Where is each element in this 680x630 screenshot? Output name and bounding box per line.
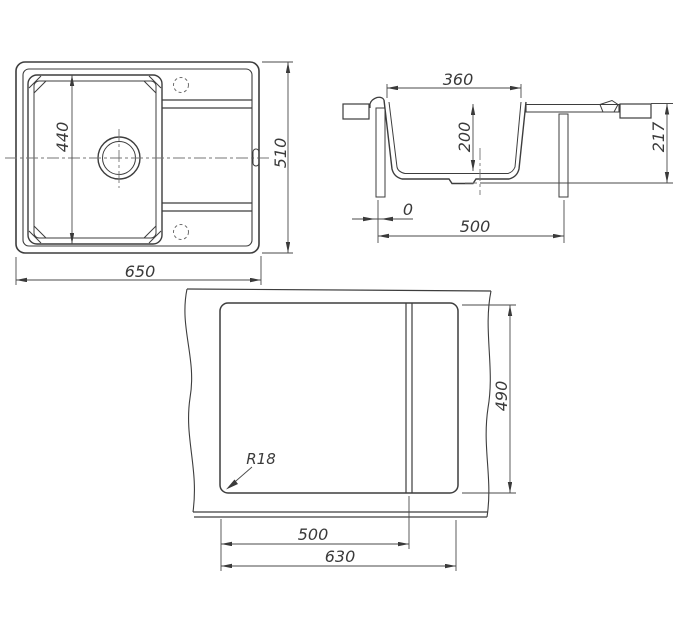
dim-bowl-depth: 200 [455, 104, 474, 171]
cutout-divider-lines [406, 303, 412, 493]
corner-radius-callout: R18 [226, 450, 276, 490]
support-rail-left [376, 108, 385, 197]
sink-drawing-svg: 440 510 650 [0, 0, 680, 630]
dim-main-section-width: 500 [221, 496, 409, 571]
sink-outer-outline [16, 62, 259, 253]
countertop-top-edge [187, 289, 491, 291]
sink-inner-outline [23, 69, 252, 246]
bowl-rim-outer [28, 75, 162, 244]
dim-label-500-cutout: 500 [298, 525, 329, 544]
rim-lip-left [370, 97, 384, 108]
countertop-break-right [486, 291, 491, 517]
bowl-corner-chamfers [29, 76, 161, 243]
cutout-view: R18 490 500 630 [185, 289, 516, 571]
dim-edge-offset: 0 [352, 200, 413, 243]
fixing-clip-detail [600, 101, 618, 113]
tap-hole-top [174, 78, 189, 93]
dim-label-650: 650 [125, 262, 156, 281]
dim-overall-height: 217 [480, 104, 673, 184]
edge-clip-mark [253, 149, 259, 166]
dim-label-217: 217 [649, 121, 668, 152]
plan-view: 440 510 650 [5, 62, 293, 285]
support-rail-right [559, 114, 568, 197]
dim-bowl-top-width: 360 [387, 70, 521, 98]
dim-label-510: 510 [271, 138, 290, 169]
countertop-break-left [185, 289, 195, 512]
dim-label-500-section: 500 [460, 217, 491, 236]
dim-cutout-width: 630 [221, 520, 456, 571]
technical-drawing-canvas: 440 510 650 [0, 0, 680, 630]
drainboard-ribs [162, 100, 252, 211]
dim-label-440: 440 [53, 122, 72, 153]
dim-overall-depth: 510 [262, 62, 293, 253]
countertop-front-edge [193, 512, 488, 517]
dim-bowl-length: 440 [53, 75, 72, 244]
dim-label-r18: R18 [246, 450, 276, 468]
dim-label-490: 490 [492, 381, 511, 412]
dim-label-630: 630 [325, 547, 356, 566]
dim-overall-width: 650 [16, 256, 261, 285]
dim-label-0: 0 [403, 200, 413, 219]
countertop-left-section [343, 104, 369, 119]
tap-hole-bottom [174, 225, 189, 240]
bowl-rim-inner [34, 81, 156, 238]
drainboard-section-strip [526, 101, 619, 113]
countertop-right-section [620, 104, 651, 118]
dim-label-360: 360 [443, 70, 474, 89]
dim-label-200: 200 [455, 122, 474, 153]
section-view: 360 200 217 0 500 [343, 70, 673, 243]
